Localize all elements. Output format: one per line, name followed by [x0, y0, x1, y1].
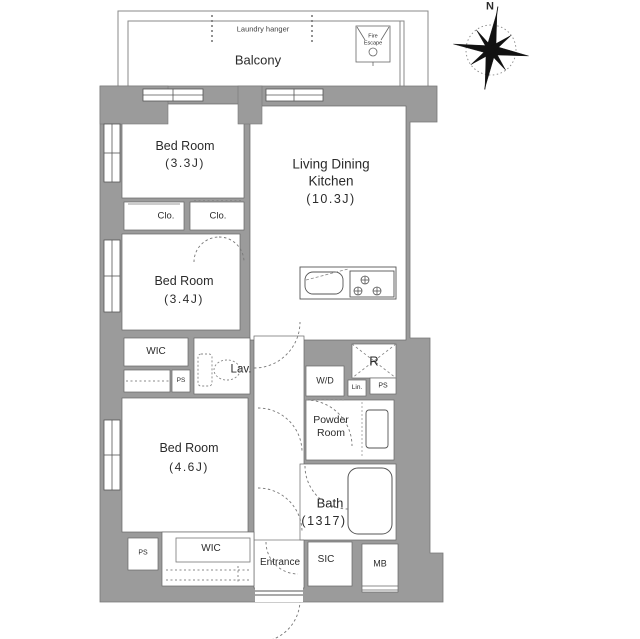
balcony-label: Balcony — [235, 54, 281, 67]
window-left-bedroom-middle — [104, 240, 120, 312]
bathtub — [348, 468, 392, 534]
ldk-name-line1: Living Dining — [292, 157, 369, 171]
closet-right-label: Clo. — [210, 211, 227, 221]
kitchen-stove — [350, 271, 394, 297]
entrance-label: Entrance — [260, 558, 300, 568]
bedroom-top-size: (3.3J) — [165, 157, 205, 169]
entrance-door-arc — [258, 600, 300, 639]
kitchen-counter — [300, 267, 396, 299]
laundry-hanger-label: Laundry hanger — [237, 25, 290, 33]
ldk-name-line2: Kitchen — [308, 174, 353, 188]
closet-left-label: Clo. — [158, 211, 175, 221]
lavatory-label: Lav. — [231, 364, 252, 376]
fire-escape-label-line2: Escape — [364, 41, 382, 47]
wic-bottom-label: WIC — [201, 544, 220, 554]
wic-middle-label: WIC — [146, 347, 165, 357]
floor-plan: N Laundry hanger Balcony Fire Escape Bed… — [0, 0, 640, 639]
mb-label: MB — [373, 560, 387, 569]
refrigerator-label: R — [369, 355, 378, 368]
wash-basin — [366, 410, 388, 448]
room-hallway — [254, 336, 304, 588]
compass-icon — [447, 1, 535, 96]
window-left-bedroom-bottom — [104, 420, 120, 490]
bath-size: (1317) — [301, 515, 346, 528]
bath-name: Bath — [317, 497, 344, 510]
ps-right-label: PS — [378, 383, 387, 390]
fire-escape-label-line1: Fire — [368, 34, 377, 40]
ps-middle-label: PS — [177, 378, 186, 385]
window-top-ldk — [266, 89, 323, 101]
room-ldk — [250, 106, 406, 340]
compass-north-label: N — [486, 2, 494, 13]
ps-bottom-label: PS — [138, 550, 147, 557]
bedroom-middle-name: Bed Room — [154, 275, 213, 288]
linen-label: Lin. — [352, 385, 362, 392]
window-top-bedroom — [143, 89, 203, 101]
powder-room-label-line2: Room — [317, 428, 345, 439]
room-closet-left — [124, 202, 184, 230]
bedroom-top-name: Bed Room — [155, 140, 214, 153]
bedroom-bottom-size: (4.6J) — [169, 461, 209, 473]
sic-label: SIC — [318, 555, 335, 565]
kitchen-sink — [305, 272, 343, 294]
floorplan-graphics — [0, 0, 640, 639]
bedroom-bottom-name: Bed Room — [159, 442, 218, 455]
entrance-door — [255, 587, 303, 602]
ldk-size: (10.3J) — [306, 193, 355, 206]
powder-room-label-line1: Powder — [313, 415, 349, 426]
bedroom-middle-size: (3.4J) — [164, 293, 204, 305]
washer-dryer-label: W/D — [316, 377, 334, 386]
window-left-bedroom-top — [104, 124, 120, 182]
